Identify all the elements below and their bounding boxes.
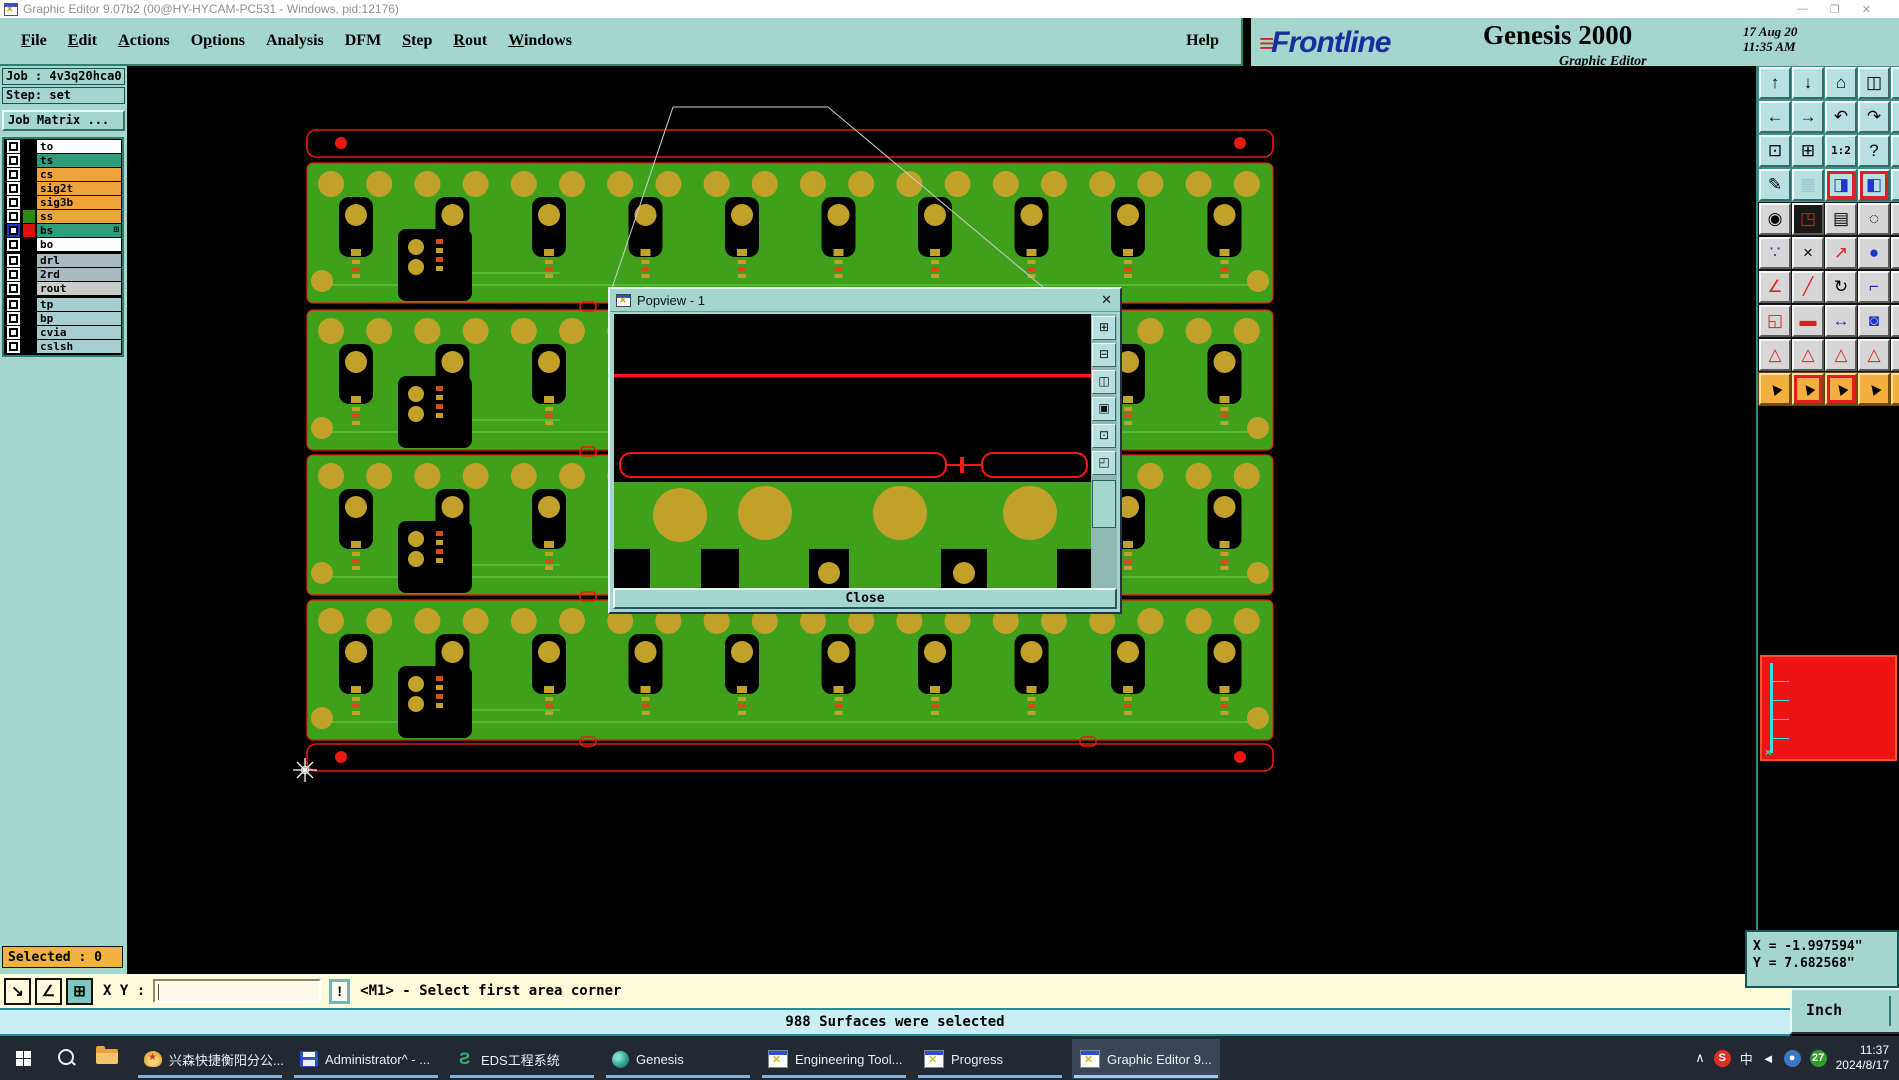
layer-name[interactable]: bp: [37, 312, 121, 325]
xwin-icon: [768, 1050, 788, 1068]
pad-extra-icon[interactable]: ◙: [1891, 305, 1899, 337]
line-draw-icon[interactable]: ╱: [1792, 271, 1824, 303]
taskbar-app-floppy[interactable]: Administrator^ - ...: [292, 1039, 440, 1079]
popview-sidebar: ◰⊡▣◫⊟⊞: [1091, 314, 1117, 591]
network-icon[interactable]: ●: [1784, 1050, 1801, 1067]
eds-icon: [456, 1051, 474, 1067]
xy-label: X Y :: [103, 983, 145, 999]
taskbar-clock[interactable]: 11:372024/8/17: [1836, 1043, 1889, 1073]
layer-color-swatch[interactable]: [23, 268, 35, 281]
popview-title: Popview - 1: [637, 293, 705, 308]
help-pointer-icon[interactable]: ?: [1858, 135, 1890, 167]
genesis-icon: [612, 1051, 629, 1068]
notification-badge[interactable]: 27: [1810, 1050, 1827, 1067]
layer-row-tp[interactable]: tp: [5, 298, 121, 311]
layer-row-rout[interactable]: rout: [5, 282, 121, 295]
layer-checkbox[interactable]: [7, 268, 20, 281]
pop-zoom-out-icon[interactable]: ⊟: [1092, 343, 1116, 367]
layer-color-swatch[interactable]: [23, 154, 35, 167]
popview-scroll-thumb[interactable]: [1092, 480, 1116, 528]
layer-name[interactable]: bs⊞: [37, 224, 121, 237]
layer-name[interactable]: 2rd: [37, 268, 121, 281]
break-line-icon[interactable]: ▬: [1792, 305, 1824, 337]
frontline-logo: ≡Frontline: [1259, 26, 1391, 60]
command-row: ⊞∠↘ X Y : ! <M1> - Select first area cor…: [0, 974, 1790, 1008]
left-panel: Job : 4v3q20hca0 Step: set Job Matrix ..…: [0, 66, 127, 974]
layer-color-swatch[interactable]: [23, 340, 35, 353]
layer-checkbox[interactable]: [7, 196, 20, 209]
layer-name[interactable]: cs: [37, 168, 121, 181]
menu-rout[interactable]: Rout: [453, 32, 487, 50]
layer-list: totscssig2tsig3bssbs⊞bodrl2rdrouttpbpcvi…: [2, 137, 124, 357]
layer-color-swatch[interactable]: [23, 282, 35, 295]
chain-select-icon[interactable]: ∵: [1759, 237, 1791, 269]
select-frame-icon[interactable]: ▲: [1792, 373, 1824, 405]
layer-row-to[interactable]: to: [5, 140, 121, 153]
menu-analysis[interactable]: Analysis: [266, 32, 324, 50]
resize-corner-icon[interactable]: ↘: [4, 978, 31, 1005]
move-origin-icon[interactable]: ●: [1858, 237, 1890, 269]
layer-color-swatch[interactable]: [23, 224, 35, 237]
measure-ruler-icon[interactable]: ▤: [1825, 203, 1857, 235]
menu-file[interactable]: File: [21, 32, 47, 50]
swap-pads-icon[interactable]: ◱: [1759, 305, 1791, 337]
popview-artwork: [614, 314, 1093, 591]
layer-row-sig3b[interactable]: sig3b: [5, 196, 121, 209]
window-titlebar: Graphic Editor 9.07b2 (00@HY-HYCAM-PC531…: [0, 0, 1899, 18]
select-pointer-icon[interactable]: ▲: [1759, 373, 1791, 405]
pad-mask-icon[interactable]: ◙: [1858, 305, 1890, 337]
move-feature-icon[interactable]: ◉: [1759, 203, 1791, 235]
taskbar-app-genesis[interactable]: Genesis: [604, 1039, 752, 1079]
setup-tools-icon[interactable]: ✎: [1759, 169, 1791, 201]
zoom-ratio-icon[interactable]: 1:2: [1825, 135, 1857, 167]
product-name: Genesis 2000: [1483, 20, 1632, 51]
dfm-triangle-4-icon[interactable]: △: [1858, 339, 1890, 371]
layer-context-icon[interactable]: ⊞: [114, 226, 119, 235]
select-polygon-icon[interactable]: ▲: [1825, 373, 1857, 405]
lang-indicator[interactable]: 中: [1740, 1049, 1753, 1068]
popview-dialog: Popview - 1 ✕ ◰⊡▣◫⊟⊞ Close: [608, 287, 1122, 614]
pop-sync-view-icon[interactable]: ◰: [1092, 451, 1116, 475]
pan-up-icon[interactable]: ↑: [1759, 67, 1791, 99]
home-view-icon[interactable]: ⌂: [1825, 67, 1857, 99]
menu-step[interactable]: Step: [402, 32, 432, 50]
pop-zoom-in-icon[interactable]: ⊞: [1092, 316, 1116, 340]
dfm-triangle-3-icon[interactable]: △: [1825, 339, 1857, 371]
layer-checkbox[interactable]: [7, 282, 20, 295]
overview-ruler: [1770, 663, 1793, 753]
select-area-icon[interactable]: ◌: [1858, 203, 1890, 235]
layer-checkbox[interactable]: [7, 182, 20, 195]
popview-titlebar[interactable]: Popview - 1 ✕: [610, 289, 1120, 312]
overview-map: ✕: [1760, 655, 1897, 761]
layer-row-2rd[interactable]: 2rd: [5, 268, 121, 281]
taskbar-app-xwin[interactable]: Progress: [916, 1039, 1064, 1079]
taskbar: 兴森快捷衡阳分公...Administrator^ - ...EDS工程系统Ge…: [0, 1036, 1899, 1080]
net-extra-icon[interactable]: ●: [1891, 169, 1899, 201]
layer-checkbox[interactable]: [7, 210, 20, 223]
search-button[interactable]: [46, 1036, 86, 1080]
layer-checkbox[interactable]: [7, 254, 20, 267]
step-label: Step: set: [2, 87, 125, 104]
speaker-icon[interactable]: ◄: [1762, 1051, 1775, 1066]
app-icon: [4, 3, 18, 16]
mirror-tool-icon[interactable]: ⌐: [1858, 271, 1890, 303]
layer-checkbox[interactable]: [7, 238, 20, 251]
snap-dot-icon[interactable]: ●: [1891, 237, 1899, 269]
job-matrix-button[interactable]: Job Matrix ...: [2, 110, 125, 131]
zoom-center-icon[interactable]: ⊞: [1792, 135, 1824, 167]
copy-feature-icon[interactable]: ↗: [1825, 237, 1857, 269]
prompt-text: <M1> - Select first area corner: [360, 983, 621, 999]
grid-toggle-icon[interactable]: ▦: [1792, 169, 1824, 201]
pop-overlay-view-icon[interactable]: ▣: [1092, 397, 1116, 421]
layer-name[interactable]: cslsh: [37, 340, 121, 353]
layer-name[interactable]: bo: [37, 238, 121, 251]
selected-count: Selected : 0: [2, 946, 123, 968]
layer-color-swatch[interactable]: [23, 182, 35, 195]
layer-checkbox[interactable]: [7, 168, 20, 181]
dfm-triangle-5-icon[interactable]: △: [1891, 339, 1899, 371]
transform-feature-icon[interactable]: ◳: [1792, 203, 1824, 235]
layer-row-drl[interactable]: drl: [5, 254, 121, 267]
layer-row-cs[interactable]: cs: [5, 168, 121, 181]
menu-edit[interactable]: Edit: [68, 32, 97, 50]
select-net-icon[interactable]: ▲: [1858, 373, 1890, 405]
layer-color-swatch[interactable]: [23, 140, 35, 153]
tray-chevron-icon[interactable]: ∧: [1695, 1050, 1705, 1066]
layer-checkbox[interactable]: [7, 224, 20, 237]
layer-name[interactable]: cvia: [37, 326, 121, 339]
pop-detach-view-icon[interactable]: ◫: [1092, 370, 1116, 394]
taskbar-app-shell[interactable]: 兴森快捷衡阳分公...: [136, 1039, 284, 1079]
units-button[interactable]: Inch: [1790, 988, 1899, 1034]
tile-window-icon[interactable]: ▣: [1891, 67, 1899, 99]
layer-row-bp[interactable]: bp: [5, 312, 121, 325]
previous-view-icon[interactable]: ↶: [1825, 101, 1857, 133]
select-extra-icon[interactable]: ▲: [1891, 373, 1899, 405]
layer-row-cvia[interactable]: cvia: [5, 326, 121, 339]
pan-right-icon[interactable]: →: [1792, 101, 1824, 133]
flip-tool-icon[interactable]: ⌐: [1891, 271, 1899, 303]
layer-color-swatch[interactable]: [23, 326, 35, 339]
menu-windows[interactable]: Windows: [508, 32, 572, 50]
dimension-icon[interactable]: ↔: [1825, 305, 1857, 337]
xwin-icon: [1080, 1050, 1100, 1068]
layer-checkbox[interactable]: [7, 298, 20, 311]
floppy-icon: [300, 1051, 318, 1067]
layer-name[interactable]: to: [37, 140, 121, 153]
layer-name[interactable]: rout: [37, 282, 121, 295]
layer-checkbox[interactable]: [7, 154, 20, 167]
delete-feature-icon[interactable]: ×: [1792, 237, 1824, 269]
refresh-view-icon[interactable]: ↻: [1891, 101, 1899, 133]
datetime: 17 Aug 2011:35 AM: [1743, 24, 1797, 54]
screen: Graphic Editor 9.07b2 (00@HY-HYCAM-PC531…: [0, 0, 1899, 1080]
layer-row-cslsh[interactable]: cslsh: [5, 340, 121, 353]
window-title: Graphic Editor 9.07b2 (00@HY-HYCAM-PC531…: [23, 2, 399, 16]
folder-icon: [96, 1049, 118, 1064]
start-button[interactable]: [0, 1036, 46, 1080]
pop-pan-view-icon[interactable]: ⊡: [1092, 424, 1116, 448]
popview-icon: [616, 294, 631, 307]
brand-panel: ≡Frontline Genesis 2000 17 Aug 2011:35 A…: [1251, 18, 1899, 68]
layer-color-swatch[interactable]: [23, 312, 35, 325]
layer-color-swatch[interactable]: [23, 238, 35, 251]
minimize-button[interactable]: —: [1797, 3, 1808, 16]
layer-row-bs[interactable]: bs⊞: [5, 224, 121, 237]
layer-checkbox[interactable]: [7, 326, 20, 339]
menu-options[interactable]: Options: [191, 32, 245, 50]
taskbar-app-xwin[interactable]: Engineering Tool...: [760, 1039, 908, 1079]
next-view-icon[interactable]: ↷: [1858, 101, 1890, 133]
xy-input[interactable]: [153, 979, 321, 1003]
layer-row-ss[interactable]: ss: [5, 210, 121, 223]
menu-help[interactable]: Help: [1186, 32, 1219, 50]
grid-snap-icon[interactable]: ⊞: [66, 978, 93, 1005]
layer-name[interactable]: sig2t: [37, 182, 121, 195]
net-compare-icon[interactable]: ◧: [1858, 169, 1890, 201]
split-window-icon[interactable]: ◫: [1858, 67, 1890, 99]
rotate-tool-icon[interactable]: ↻: [1825, 271, 1857, 303]
angle-snap-icon[interactable]: ∠: [35, 978, 62, 1005]
layer-row-ts[interactable]: ts: [5, 154, 121, 167]
alert-button[interactable]: !: [329, 979, 350, 1004]
layer-color-swatch[interactable]: [23, 210, 35, 223]
menu-dfm[interactable]: DFM: [345, 32, 381, 50]
shell-icon: [144, 1051, 162, 1067]
layer-color-swatch[interactable]: [23, 254, 35, 267]
menu-actions[interactable]: Actions: [118, 32, 170, 50]
popview-close-x[interactable]: ✕: [1101, 292, 1112, 308]
dfm-triangle-1-icon[interactable]: △: [1759, 339, 1791, 371]
dfm-triangle-2-icon[interactable]: △: [1792, 339, 1824, 371]
status-message: 988 Surfaces were selected: [0, 1008, 1790, 1036]
cursor-coordinates: X = -1.997594" Y = 7.682568": [1745, 930, 1899, 988]
taskbar-app-eds[interactable]: EDS工程系统: [448, 1039, 596, 1079]
layer-color-swatch[interactable]: [23, 298, 35, 311]
popview-close-button[interactable]: Close: [613, 588, 1117, 609]
menu-bar: FileEditActionsOptionsAnalysisDFMStepRou…: [0, 18, 1243, 66]
layer-checkbox[interactable]: [7, 312, 20, 325]
sogou-icon[interactable]: S: [1714, 1050, 1731, 1067]
layer-name[interactable]: tp: [37, 298, 121, 311]
job-label: Job : 4v3q20hca0: [2, 68, 125, 85]
zoom-fit-icon[interactable]: ⊡: [1759, 135, 1791, 167]
maximize-button[interactable]: ❐: [1830, 3, 1840, 16]
right-toolbar-panel: ↑↓⌂◫▣←→↶↷↻⊡⊞1:2?i✎▦◨◧●◉◳▤◌●∵×↗●●∠╱↻⌐⌐◱▬↔…: [1756, 66, 1899, 932]
angle-measure-icon[interactable]: ∠: [1759, 271, 1791, 303]
layer-checkbox[interactable]: [7, 340, 20, 353]
layer-name[interactable]: ts: [37, 154, 121, 167]
layer-row-bo[interactable]: bo: [5, 238, 121, 251]
layer-name[interactable]: ss: [37, 210, 121, 223]
file-explorer-button[interactable]: [86, 1036, 128, 1080]
info-icon[interactable]: i: [1891, 135, 1899, 167]
layer-checkbox[interactable]: [7, 140, 20, 153]
xwin-icon: [924, 1050, 944, 1068]
select-dot-icon[interactable]: ●: [1891, 203, 1899, 235]
layer-row-sig2t[interactable]: sig2t: [5, 182, 121, 195]
pan-down-icon[interactable]: ↓: [1792, 67, 1824, 99]
overview-origin-mark: ✕: [1764, 748, 1772, 759]
layer-name[interactable]: sig3b: [37, 196, 121, 209]
close-button[interactable]: ✕: [1862, 3, 1871, 16]
layer-color-swatch[interactable]: [23, 168, 35, 181]
popview-viewport[interactable]: [614, 314, 1093, 591]
pan-left-icon[interactable]: ←: [1759, 101, 1791, 133]
taskbar-app-xwin[interactable]: Graphic Editor 9...: [1072, 1039, 1220, 1079]
windows-logo-icon: [16, 1051, 31, 1066]
layer-color-swatch[interactable]: [23, 196, 35, 209]
layer-name[interactable]: drl: [37, 254, 121, 267]
system-tray: ∧ S中◄●27 11:372024/8/17: [1695, 1043, 1899, 1073]
netlist-view-icon[interactable]: ◨: [1825, 169, 1857, 201]
